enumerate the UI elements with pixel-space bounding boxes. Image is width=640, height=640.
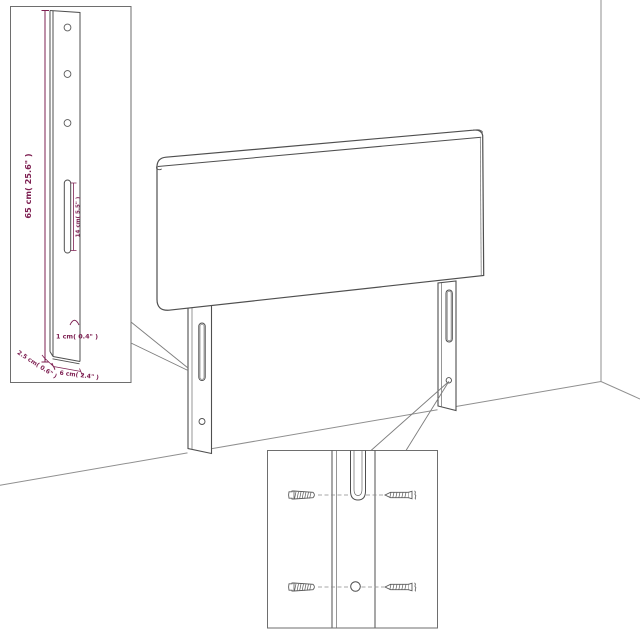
post-hole-icon — [64, 24, 71, 31]
leg-height-label: 65 cm( 25.6" ) — [23, 153, 33, 219]
mount-hole — [351, 582, 361, 592]
mounting-detail-inset-border — [268, 451, 438, 629]
floor-line-left — [0, 453, 188, 485]
post-hole-icon — [64, 71, 71, 78]
slot-length-label: 14 cm( 5.5" ) — [76, 196, 82, 237]
mounting-detail-inset — [268, 451, 438, 629]
mount-callout-leader-lines — [371, 382, 449, 451]
headboard-panel — [156, 130, 483, 311]
post-hole-icon — [64, 120, 71, 127]
leg-callout-leader-lines — [131, 322, 188, 371]
hole-diameter-label: 1 cm( 0.4" ) — [56, 333, 98, 341]
headboard-left-leg — [188, 304, 212, 454]
wall-plug-icon — [289, 491, 315, 499]
wall-plug-icon — [289, 583, 315, 591]
leg-detail-inset: 65 cm( 25.6" ) 14 cm( 5.5" ) 1 cm( 0.4" … — [11, 7, 132, 383]
floor-line-center — [212, 410, 438, 449]
post-slot — [64, 180, 70, 253]
floor-line-right — [456, 382, 640, 407]
left-leg-hole — [199, 419, 205, 425]
headboard-right-leg — [438, 281, 456, 411]
diagram-canvas: 65 cm( 25.6" ) 14 cm( 5.5" ) 1 cm( 0.4" … — [0, 0, 640, 640]
product-illustration: 65 cm( 25.6" ) 14 cm( 5.5" ) 1 cm( 0.4" … — [0, 0, 640, 640]
